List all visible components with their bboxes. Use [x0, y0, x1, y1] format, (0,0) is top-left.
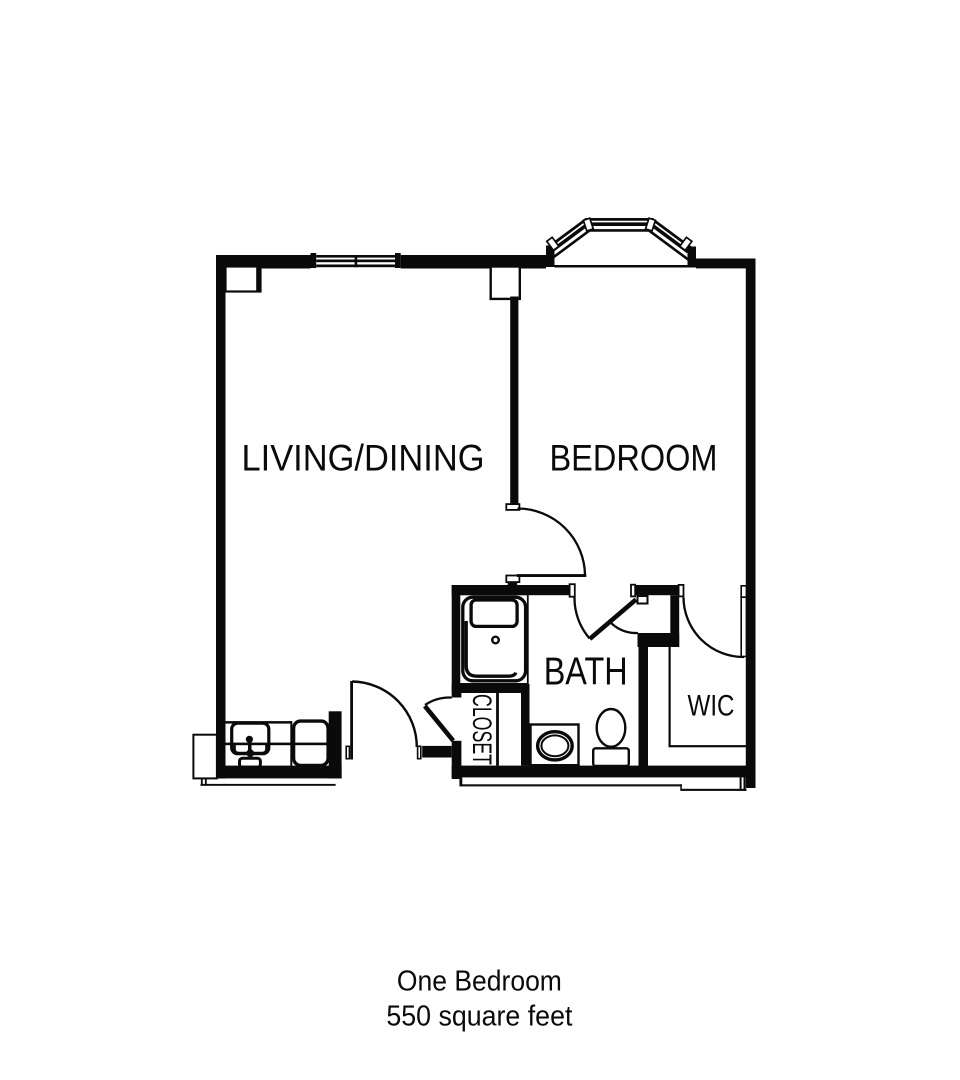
- svg-text:LIVING/DINING: LIVING/DINING: [242, 437, 485, 479]
- svg-text:CLOSET: CLOSET: [467, 694, 498, 765]
- svg-text:BATH: BATH: [544, 651, 628, 694]
- svg-text:One Bedroom: One Bedroom: [397, 966, 562, 998]
- svg-text:550 square feet: 550 square feet: [386, 1001, 572, 1033]
- svg-text:BEDROOM: BEDROOM: [550, 437, 718, 479]
- svg-text:WIC: WIC: [688, 690, 735, 723]
